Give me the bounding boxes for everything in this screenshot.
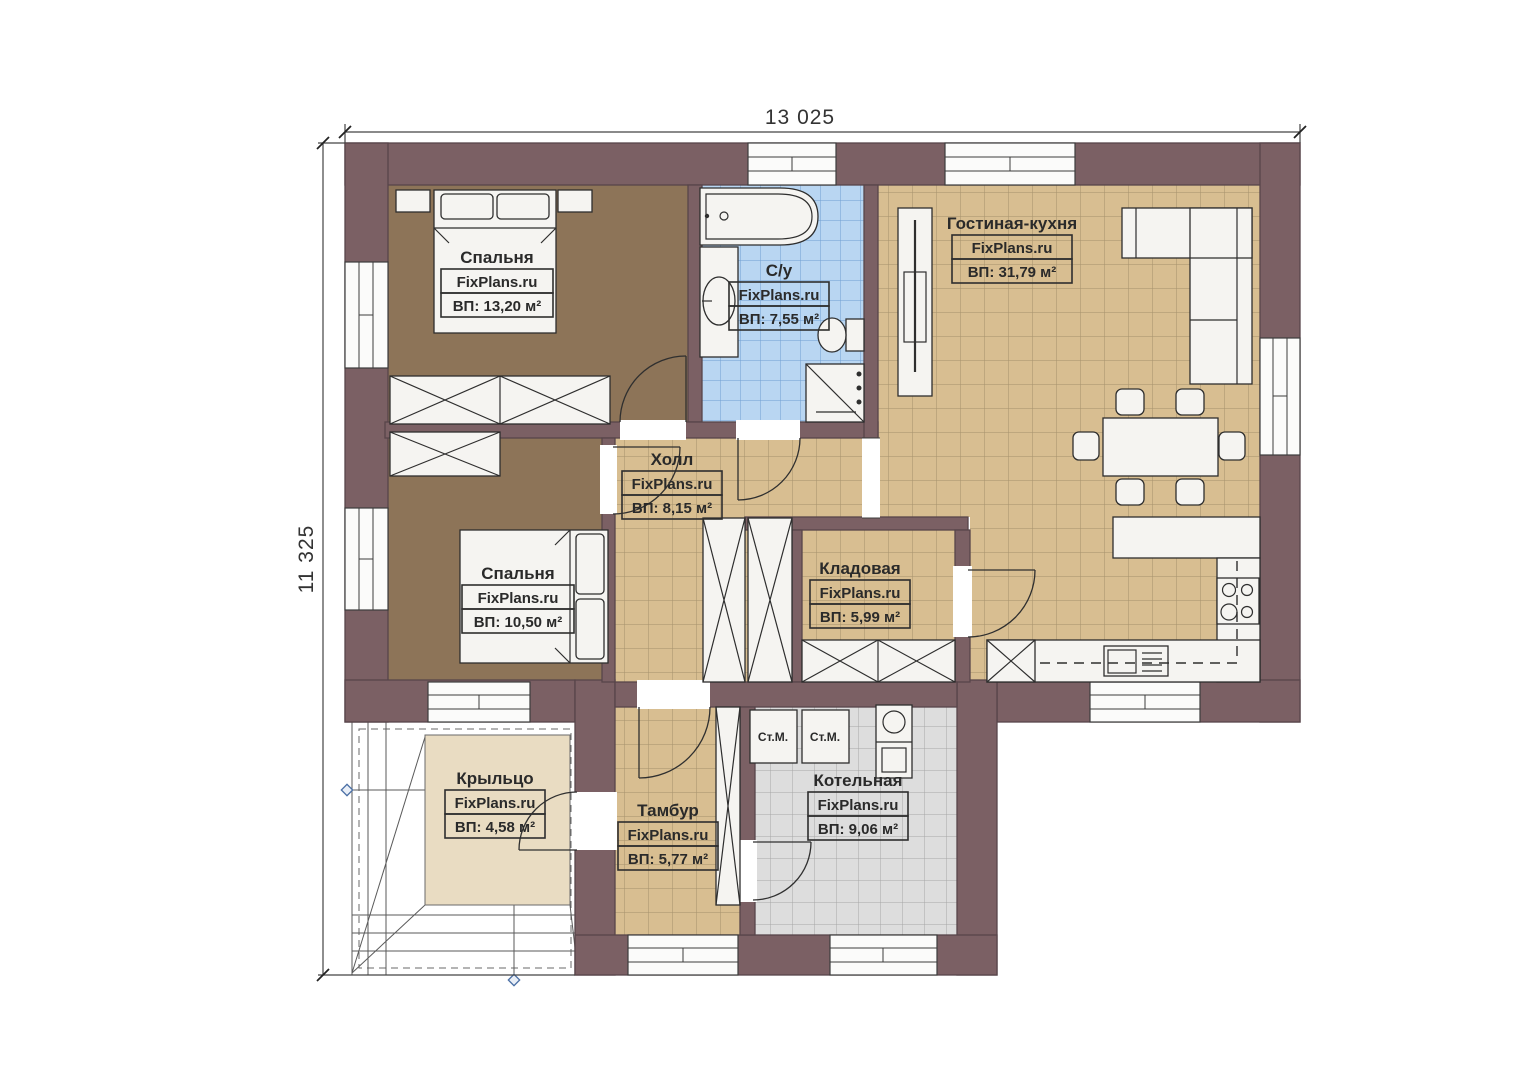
chair [1219, 432, 1245, 460]
room-name: Спальня [481, 564, 554, 583]
watermark: FixPlans.ru [632, 476, 713, 493]
room-area: ВП: 5,99 м² [820, 609, 900, 626]
watermark: FixPlans.ru [820, 585, 901, 602]
floor-plan-canvas: Спальня FixPlans.ru ВП: 13,20 м² С/у Fix… [0, 0, 1528, 1080]
dimension-height: 11 325 [295, 525, 318, 594]
chair [1176, 389, 1204, 415]
room-name: Крыльцо [456, 769, 533, 788]
room-name: Котельная [813, 771, 902, 790]
room-name: С/у [766, 261, 793, 280]
toilet-tank [846, 319, 864, 351]
nightstand [558, 190, 592, 212]
kitchen-counter-top [1113, 517, 1260, 558]
chair [1073, 432, 1099, 460]
window-bottom-bedroom-2 [428, 682, 530, 722]
room-name: Кладовая [819, 559, 900, 578]
passage-hall-living [862, 438, 880, 518]
survey-marker-icon [341, 784, 352, 795]
room-area: ВП: 13,20 м² [453, 298, 542, 315]
room-area: ВП: 10,50 м² [474, 614, 563, 631]
chair [1116, 479, 1144, 505]
watermark: FixPlans.ru [818, 797, 899, 814]
bathtub-tap-icon [705, 214, 709, 218]
corner-sofa [1190, 208, 1252, 384]
nightstand [396, 190, 430, 212]
watermark: FixPlans.ru [478, 590, 559, 607]
watermark: FixPlans.ru [628, 827, 709, 844]
room-area: ВП: 5,77 м² [628, 851, 708, 868]
pillow [441, 194, 493, 219]
dimension-top: 13 025 [339, 106, 1306, 143]
watermark: FixPlans.ru [455, 795, 536, 812]
window-left-bedroom-2 [345, 508, 388, 610]
room-name: Спальня [460, 248, 533, 267]
room-area: ВП: 7,55 м² [739, 311, 819, 328]
chair [1116, 389, 1144, 415]
furniture-hall [703, 518, 792, 682]
washing-machine-label: Ст.М. [810, 730, 840, 744]
room-label-porch: Крыльцо FixPlans.ru ВП: 4,58 м² [445, 769, 545, 838]
toilet [818, 318, 846, 352]
chair [1176, 479, 1204, 505]
window-right-living [1260, 338, 1300, 455]
room-area: ВП: 9,06 м² [818, 821, 898, 838]
pillow [497, 194, 549, 219]
window-top-living [945, 143, 1075, 185]
dimension-width: 13 025 [765, 106, 835, 129]
window-left-bedroom-1 [345, 262, 388, 368]
window-top-bathroom [748, 143, 836, 185]
window-bottom-kitchen [1090, 682, 1200, 722]
survey-marker-icon [508, 974, 519, 985]
room-label-storage: Кладовая FixPlans.ru ВП: 5,99 м² [810, 559, 910, 628]
room-name: Гостиная-кухня [947, 214, 1077, 233]
window-bottom-boiler [830, 935, 937, 975]
pillow [576, 534, 604, 594]
window-bottom-vestibule [628, 935, 738, 975]
wall-left [345, 143, 388, 722]
pillow [576, 599, 604, 659]
dining-table [1103, 418, 1218, 476]
watermark: FixPlans.ru [457, 274, 538, 291]
furniture-vestibule [716, 707, 740, 905]
watermark: FixPlans.ru [739, 287, 820, 304]
room-name: Тамбур [637, 801, 699, 820]
room-name: Холл [651, 450, 694, 469]
room-area: ВП: 31,79 м² [968, 264, 1057, 281]
wall-boiler-right [957, 680, 997, 975]
room-area: ВП: 4,58 м² [455, 819, 535, 836]
watermark: FixPlans.ru [972, 240, 1053, 257]
room-area: ВП: 8,15 м² [632, 500, 712, 517]
bathtub [700, 188, 818, 245]
washing-machine-label: Ст.М. [758, 730, 788, 744]
furniture-storage [802, 640, 955, 682]
room-label-boiler-room: Котельная FixPlans.ru ВП: 9,06 м² [808, 771, 908, 840]
